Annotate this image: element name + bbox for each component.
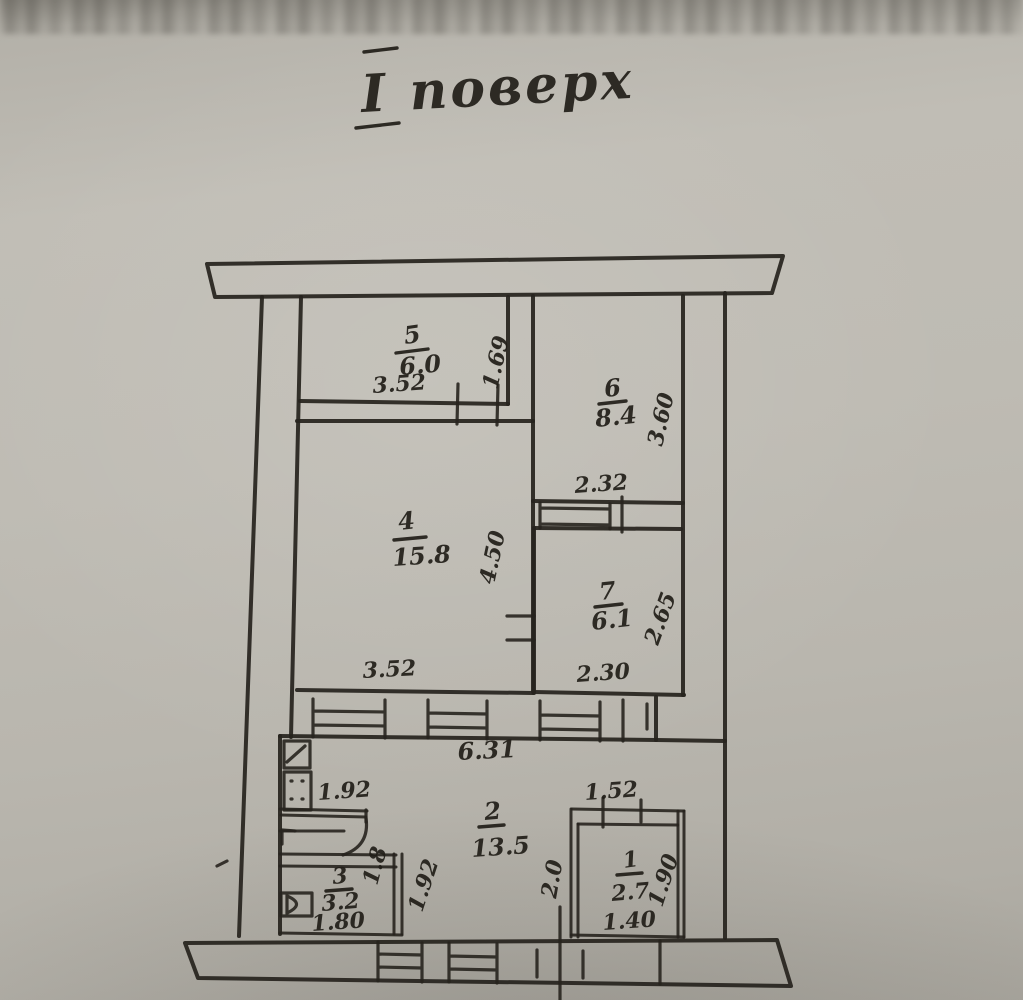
room7-bottom-wall xyxy=(534,692,684,695)
corridor-right-width-dim: 1.52 xyxy=(584,776,639,806)
room1-number-label: 1 xyxy=(621,846,640,874)
rooms-left-wall xyxy=(291,297,301,737)
left-exterior-wall xyxy=(239,297,262,936)
plan-title: І поверх xyxy=(356,48,636,128)
room4-width-dim: 3.52 xyxy=(362,655,417,684)
vent-shaft-symbol-1 xyxy=(284,741,310,768)
room4-frac-line xyxy=(394,537,426,540)
room1-frac-line xyxy=(617,873,642,875)
washbasin-fixture-room3 xyxy=(281,893,312,916)
room7-top-wall xyxy=(534,528,681,529)
room4-area-label: 15.8 xyxy=(391,539,452,572)
corridor-niche-width-dim: 1.92 xyxy=(317,776,372,806)
room1-width-dim: 1.40 xyxy=(602,906,658,936)
numeral-overline xyxy=(364,48,397,52)
room4-labels: 4 15.8 3.52 4.50 xyxy=(362,505,511,684)
vent-shaft-dots xyxy=(291,781,303,799)
room4-bottom-wall xyxy=(297,690,533,693)
room1-top-wall-outer xyxy=(572,809,684,811)
niche-bottom-wall-inner xyxy=(281,815,366,817)
floor-title-label: І поверх xyxy=(357,50,635,125)
window-symbol-left xyxy=(378,942,422,982)
window-symbol-right xyxy=(449,943,497,983)
corridor-entry-depth-dim: 2.0 xyxy=(536,857,569,901)
room6-area-label: 8.4 xyxy=(593,400,639,433)
bottom-exterior-wall xyxy=(185,940,791,986)
corridor-length-dim: 6.31 xyxy=(457,734,517,766)
door-symbol-room4-room7 xyxy=(507,616,534,640)
room6-labels: 6 8.4 2.32 3.60 xyxy=(573,372,680,499)
room7-number-label: 7 xyxy=(598,575,618,606)
room7-labels: 7 6.1 2.30 2.65 xyxy=(575,575,682,688)
room4-number-label: 4 xyxy=(397,505,417,536)
stray-pencil-tick xyxy=(217,861,227,866)
corridor-left-depth-dim: 1.92 xyxy=(403,856,444,915)
room5-width-dim: 3.52 xyxy=(372,369,427,399)
room1-bottom-wall xyxy=(571,935,684,937)
top-exterior-wall xyxy=(207,256,783,297)
door-ticks-corridor-right xyxy=(623,700,647,741)
room3-door-arc xyxy=(343,818,367,855)
room1-top-wall-inner xyxy=(578,824,678,825)
room6-number-label: 6 xyxy=(603,372,623,403)
room3-width-dim: 1.80 xyxy=(311,907,367,937)
room5-bottom-wall xyxy=(300,401,508,404)
fixtures xyxy=(281,741,312,916)
room2-area-label: 13.5 xyxy=(470,830,530,863)
room5-labels: 5 6.0 3.52 1.69 xyxy=(372,319,515,399)
door-symbol-room6-room7 xyxy=(540,503,610,529)
door-symbol-room4-corridor-right xyxy=(428,700,487,739)
scanned-floor-plan-photo: І поверх xyxy=(0,0,1023,1000)
room6-depth-dim: 3.60 xyxy=(643,390,681,449)
room7-depth-dim: 2.65 xyxy=(639,589,682,649)
room4-depth-dim: 4.50 xyxy=(474,528,511,586)
room6-width-dim: 2.32 xyxy=(573,469,629,499)
room7-width-dim: 2.30 xyxy=(575,658,632,688)
room6-bottom-wall xyxy=(533,501,683,503)
room5-number-label: 5 xyxy=(402,319,423,350)
floor-plan-drawing: І поверх xyxy=(0,0,1023,1000)
vent-shaft-symbol-2 xyxy=(284,772,311,810)
room2-number-label: 2 xyxy=(482,796,502,826)
room3-depth-dim: 1.8 xyxy=(358,844,393,888)
room3-labels: 3 3.2 1.80 1.8 xyxy=(311,844,393,937)
room2-frac-line xyxy=(479,825,504,827)
room3-number-label: 3 xyxy=(331,863,349,890)
door-symbol-room4-corridor-left xyxy=(313,699,385,738)
room1-labels: 1 2.7 1.40 1.90 xyxy=(602,846,685,936)
room7-area-label: 6.1 xyxy=(590,603,635,636)
door-symbol-room7-corridor xyxy=(540,701,600,741)
